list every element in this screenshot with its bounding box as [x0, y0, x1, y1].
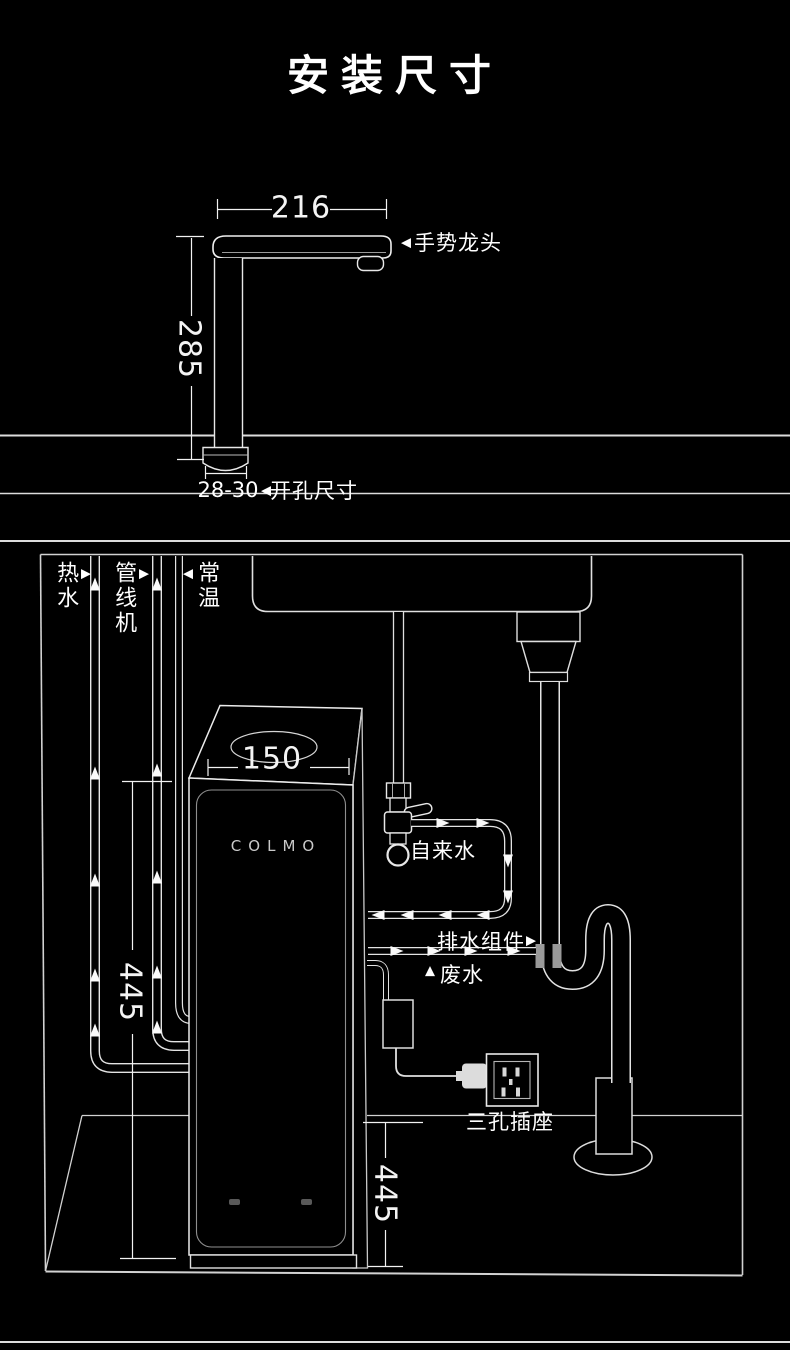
hole-label: 开孔尺寸 [270, 475, 358, 505]
page-title: 安装尺寸 [0, 42, 790, 103]
ambient-arrow-icon: ◀ [183, 567, 193, 582]
installation-diagram: 安装尺寸 216 285 ◀ 手势龙头 28-30 ◀ 开孔尺寸 热水 ▶ 管线… [0, 0, 790, 1350]
tap-water-label: 自来水 [410, 835, 476, 865]
hot-water-label: 热水 [54, 561, 77, 611]
purifier-brand-logo: COLMO [231, 837, 321, 855]
power-plug [456, 1064, 487, 1089]
dim-285: 285 [172, 319, 207, 379]
sink-outline [253, 556, 592, 612]
floor-drain [574, 1078, 652, 1175]
power-socket [487, 1054, 539, 1106]
hole-dim: 28-30 [197, 478, 258, 502]
purifier-box [189, 706, 368, 1269]
ambient-label: 常温 [195, 561, 218, 611]
drain-kit-label: 排水组件 [437, 926, 525, 956]
diagram-linework [0, 0, 790, 1350]
pipeline-machine-arrow-icon: ▶ [139, 567, 149, 582]
waste-label: 废水 [440, 959, 484, 989]
hot-water-arrow-icon: ▶ [81, 567, 91, 582]
faucet-label: 手势龙头 [414, 227, 502, 257]
waste-arrow-icon: ▲ [425, 964, 435, 979]
faucet-supply-pipe [393, 612, 404, 783]
socket-label: 三孔插座 [466, 1106, 554, 1136]
dim-150: 150 [242, 742, 302, 777]
sink-drain-strainer [517, 612, 580, 682]
pipeline-machine-label: 管线机 [112, 561, 135, 636]
dim-445-right: 445 [368, 1164, 403, 1224]
dim-445-left: 445 [113, 962, 148, 1022]
drain-kit-arrow-icon: ▶ [526, 934, 536, 949]
dim-216: 216 [271, 191, 331, 226]
drain-s-trap [550, 682, 621, 1083]
faucet-label-arrow-icon: ◀ [401, 236, 411, 251]
